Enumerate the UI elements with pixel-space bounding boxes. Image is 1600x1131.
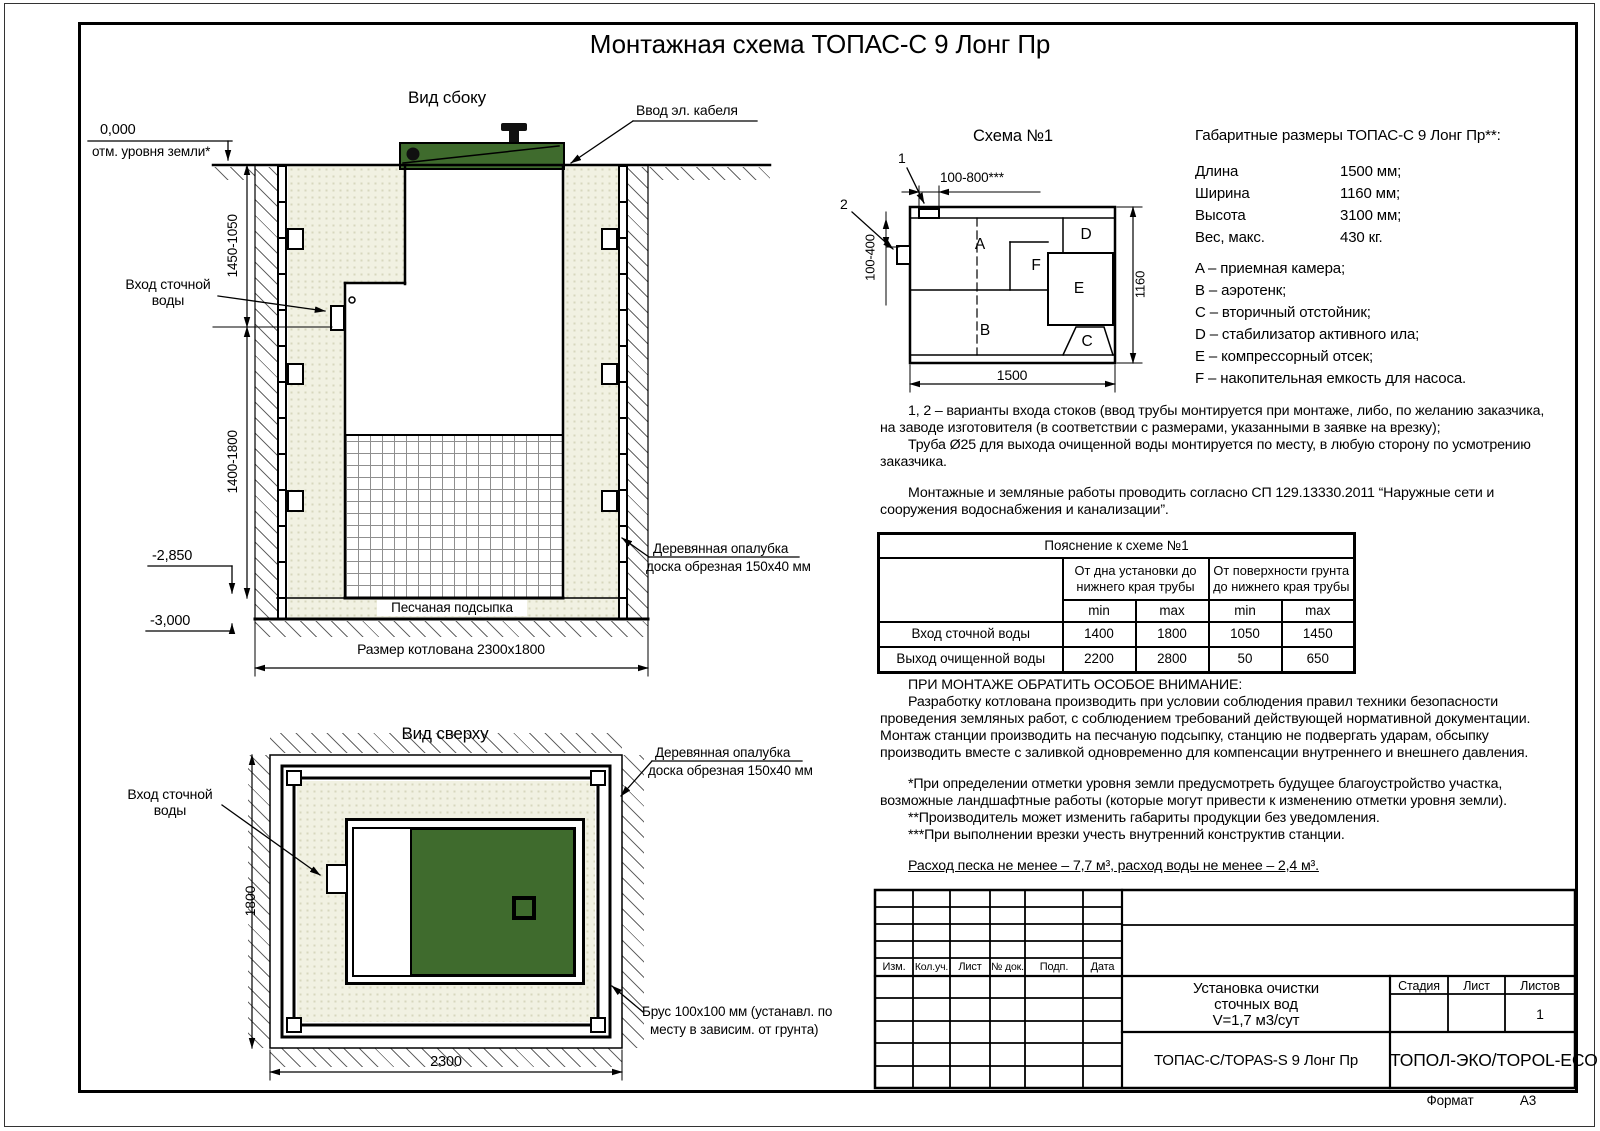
table-sub: min [1063,600,1136,622]
level-bottom: -3,000 [150,613,190,630]
table-title: Пояснение к схеме №1 [879,534,1355,559]
formwork-clip [287,228,304,250]
formwork-board-left [277,165,287,618]
spec-label: Ширина [1195,185,1250,202]
formwork-label-side-l1: Деревянная опалубка [653,541,788,557]
schema-callout-1: 1 [898,150,906,166]
table-sub: max [1136,600,1209,622]
formwork-clip [601,490,618,512]
soil-hatch-left-wall [255,167,277,619]
level-zero: 0,000 [100,122,136,139]
topview-inlet-pipe [326,864,348,894]
spec-value: 1160 мм; [1340,185,1400,202]
table-row-label: Вход сточной воды [879,622,1063,647]
legend-item: A – приемная камера; [1195,260,1345,277]
spec-value: 3100 мм; [1340,207,1401,224]
schema-dim-right: 1160 [1134,239,1149,329]
formwork-corner [286,1017,302,1033]
formwork-clip [287,363,304,385]
legend-item: B – аэротенк; [1195,282,1286,299]
compartment-d: D [1071,226,1101,244]
dim-topview-width: 2300 [396,1054,496,1071]
table-cell: 2200 [1063,647,1136,673]
formwork-corner [286,770,302,786]
table-cell: 1050 [1209,622,1282,647]
table-group2: От поверхности грунта до нижнего края тр… [1209,558,1355,600]
schema-callout-2: 2 [840,196,848,212]
table-sub: min [1209,600,1282,622]
spec-label: Длина [1195,163,1238,180]
rev-header-izm: Изм. [875,961,913,974]
table-cell: 50 [1209,647,1282,673]
company-name: ТОПОЛ-ЭКО/TOPOL-ECO [1390,1050,1575,1070]
dim-depth-lower: 1400-1800 [225,417,241,507]
formwork-clip [601,228,618,250]
table-cell: 2800 [1136,647,1209,673]
note-pipe: Труба Ø25 для выхода очищенной воды монт… [880,437,1554,471]
pit-size-label: Размер котлована 2300x1800 [351,641,551,657]
schema-dim-bottom: 1500 [972,367,1052,383]
sand-fill-left-lower [288,284,346,599]
note-variants: 1, 2 – варианты входа стоков (ввод трубы… [880,403,1554,437]
level-zero-note: отм. уровня земли* [92,144,210,160]
table-group1: От дна установки до нижнего края трубы [1063,558,1209,600]
topview-lid [410,828,575,976]
lid-handle [512,896,536,920]
attention-heading: ПРИ МОНТАЖЕ ОБРАТИТЬ ОСОБОЕ ВНИМАНИЕ: [880,677,1554,694]
compartment-f: F [1021,257,1051,275]
table-cell: 650 [1282,647,1355,673]
footnote-3: ***При выполнении врезки учесть внутренн… [880,827,1554,844]
inlet-label-top-l1: Вход сточной [118,786,222,802]
rev-header-ndok: № док. [990,961,1025,973]
inlet-label-side-l1: Вход сточной [116,276,220,292]
soil-hatch-right-wall [628,167,648,619]
spec-value: 430 кг. [1340,229,1383,246]
formwork-board-right [618,165,628,618]
project-name-l1: Установка очистки [1122,980,1390,997]
soil-hatch-left-top [213,167,255,180]
rev-header-data: Дата [1083,961,1122,974]
formwork-label-top-l1: Деревянная опалубка [655,745,790,761]
footnote-1: *При определении отметки уровня земли пр… [880,776,1554,810]
cable-entry-label: Ввод эл. кабеля [636,102,738,118]
sand-bed-label: Песчаная подсыпка [377,600,527,616]
legend-item: D – стабилизатор активного ила; [1195,326,1419,343]
attention-body: Разработку котлована производить при усл… [880,694,1554,762]
table-sub: max [1282,600,1355,622]
legend-item: C – вторичный отстойник; [1195,304,1371,321]
project-name-l3: V=1,7 м3/сут [1122,1012,1390,1029]
sheets-header: Листов [1505,979,1575,993]
explanation-table: Пояснение к схеме №1 От дна установки до… [877,532,1356,674]
table-cell: 1800 [1136,622,1209,647]
consumption-note: Расход песка не менее – 7,7 м³, расход в… [880,858,1554,875]
tank-neck [406,166,563,284]
note-sp: Монтажные и земляные работы проводить со… [880,485,1554,519]
project-name-l2: сточных вод [1122,996,1390,1013]
topview-hatch-right [622,755,644,1048]
table-corner-cell [879,558,1063,622]
footnote-2: **Производитель может изменить габариты … [880,810,1554,827]
stage-header: Стадия [1390,979,1448,993]
table-row-label: Выход очищенной воды [879,647,1063,673]
beam-label-l2: месту в зависим. от грунта) [650,1022,818,1038]
sheets-value: 1 [1505,1006,1575,1022]
compartment-a: A [965,236,995,254]
dim-topview-height: 1800 [242,856,258,946]
compartment-c: C [1072,333,1102,351]
schema-dim-left: 100-400 [864,212,879,302]
table-cell: 1450 [1282,622,1355,647]
page-title: Монтажная схема ТОПАС-С 9 Лонг Пр [560,30,1080,60]
spec-label: Вес, макс. [1195,229,1265,246]
ballast-grid [346,436,562,598]
legend-item: E – компрессорный отсек; [1195,348,1373,365]
specs-heading: Габаритные размеры ТОПАС-С 9 Лонг Пр**: [1195,127,1501,144]
spec-value: 1500 мм; [1340,163,1401,180]
drawing-sheet: Монтажная схема ТОПАС-С 9 Лонг Пр Вид сб… [0,0,1600,1131]
sand-fill-left-upper [288,166,406,284]
formwork-corner [590,1017,606,1033]
inlet-label-top-l2: воды [118,802,222,818]
sheet-header: Лист [1448,979,1505,993]
side-view-title: Вид сбоку [392,88,502,108]
tank-lid-side [399,142,565,170]
legend-item: F – накопительная емкость для насоса. [1195,370,1466,387]
model-name: ТОПАС-С/TOPAS-S 9 Лонг Пр [1122,1052,1390,1069]
level-sand: -2,850 [152,548,192,565]
attention-block: ПРИ МОНТАЖЕ ОБРАТИТЬ ОСОБОЕ ВНИМАНИЕ: Ра… [880,677,1554,875]
vent-cap [501,123,527,131]
top-view-title: Вид сверху [385,724,505,744]
format-label: Формат [1415,1093,1485,1109]
dim-depth-upper: 1450-1050 [225,201,241,291]
schema-dim-top: 100-800*** [940,170,1004,186]
inlet-label-side-l2: воды [116,292,220,308]
formwork-clip [601,363,618,385]
beam-label-l1: Брус 100x100 мм (устанавл. по [642,1004,832,1020]
formwork-label-top-l2: доска обрезная 150x40 мм [648,763,813,779]
vent-stem [509,130,519,142]
rev-header-koluch: Кол.уч. [913,961,950,973]
inlet-pipe-side [330,305,345,331]
table-cell: 1400 [1063,622,1136,647]
formwork-clip [287,490,304,512]
compartment-b: B [970,322,1000,340]
rev-header-list: Лист [950,961,990,974]
compartment-e: E [1064,280,1094,298]
formwork-corner [590,770,606,786]
soil-hatch-bottom [255,621,648,637]
format-value: А3 [1508,1093,1548,1109]
rev-header-podp: Подп. [1025,961,1083,974]
soil-hatch-right-top [648,167,770,180]
notes-block: 1, 2 – варианты входа стоков (ввод трубы… [880,403,1554,519]
schema-title: Схема №1 [948,127,1078,146]
spec-label: Высота [1195,207,1246,224]
formwork-label-side-l2: доска обрезная 150x40 мм [646,559,811,575]
